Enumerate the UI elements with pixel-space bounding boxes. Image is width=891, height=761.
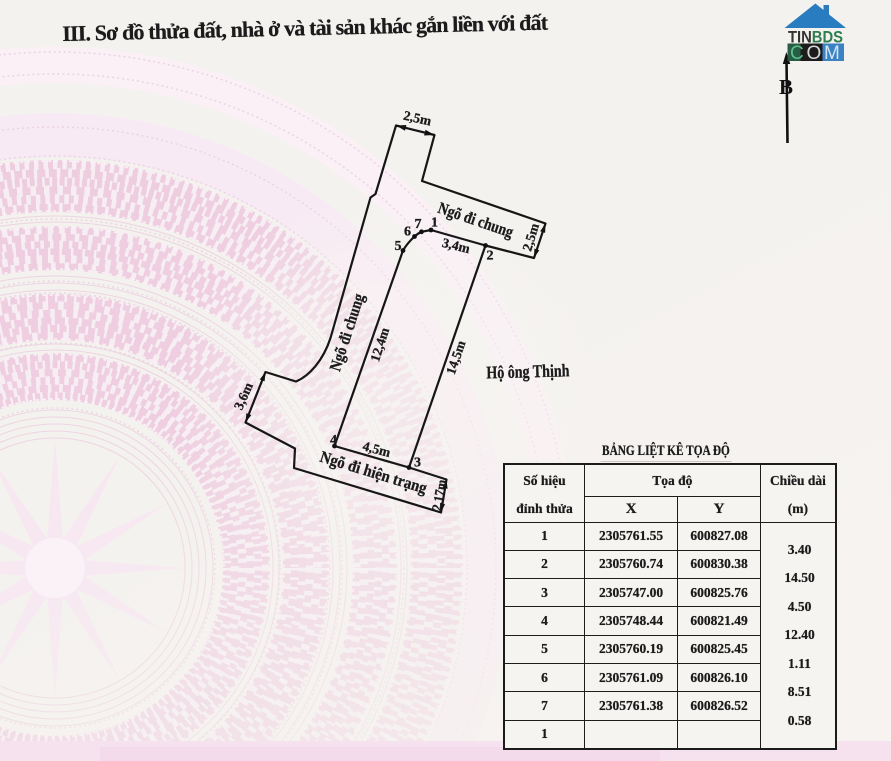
svg-text:5: 5 [395, 239, 402, 254]
svg-text:Hộ ông Thịnh: Hộ ông Thịnh [486, 362, 570, 383]
svg-text:7: 7 [415, 217, 422, 232]
svg-text:1: 1 [431, 216, 438, 231]
svg-text:C: C [790, 43, 804, 64]
svg-text:4: 4 [330, 433, 337, 448]
svg-text:2: 2 [487, 249, 494, 264]
svg-text:M: M [824, 43, 840, 64]
svg-text:O: O [807, 43, 822, 64]
svg-text:3: 3 [414, 456, 421, 471]
svg-text:B: B [779, 75, 793, 99]
svg-text:6: 6 [404, 225, 411, 240]
